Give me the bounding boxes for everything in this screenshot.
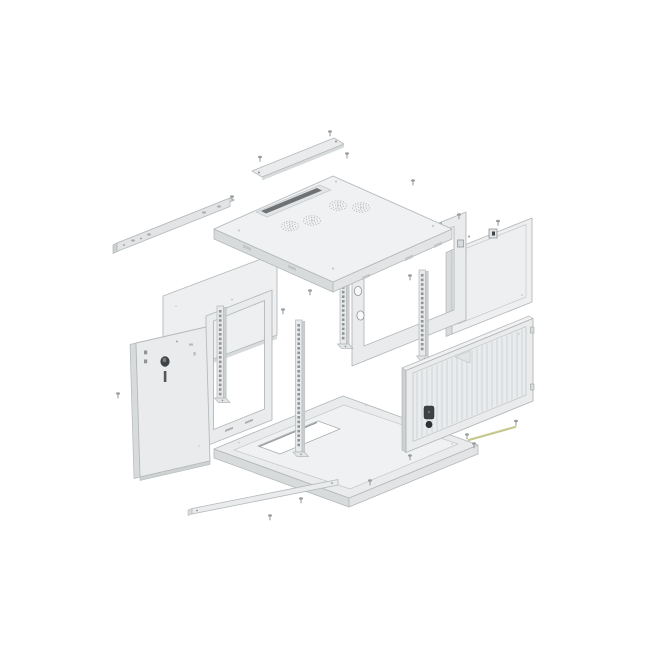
rack-rail-rear-right xyxy=(417,270,433,361)
screw-icon xyxy=(116,392,120,398)
screw-icon xyxy=(299,497,303,503)
screw-icon xyxy=(514,420,518,426)
top-cable-cover-strip xyxy=(252,138,344,181)
screw-icon xyxy=(465,433,469,439)
screw-icon xyxy=(258,156,262,162)
rack-cabinet-exploded-diagram xyxy=(0,0,650,650)
door-key-cylinder-icon xyxy=(426,421,433,428)
screw-icon xyxy=(328,130,332,136)
screw-icon xyxy=(345,152,349,158)
screw-icon xyxy=(411,179,415,185)
bottom-cover-strip-front xyxy=(188,480,338,516)
screw-icon xyxy=(496,220,500,226)
screw-icon xyxy=(408,274,412,280)
screw-icon xyxy=(268,514,272,520)
screw-icon xyxy=(308,289,312,295)
wall-mount-bracket xyxy=(113,198,235,254)
exploded-diagram-page xyxy=(0,0,650,650)
left-side-panel xyxy=(130,327,210,481)
screw-icon xyxy=(281,308,285,314)
rack-rail xyxy=(417,270,433,361)
